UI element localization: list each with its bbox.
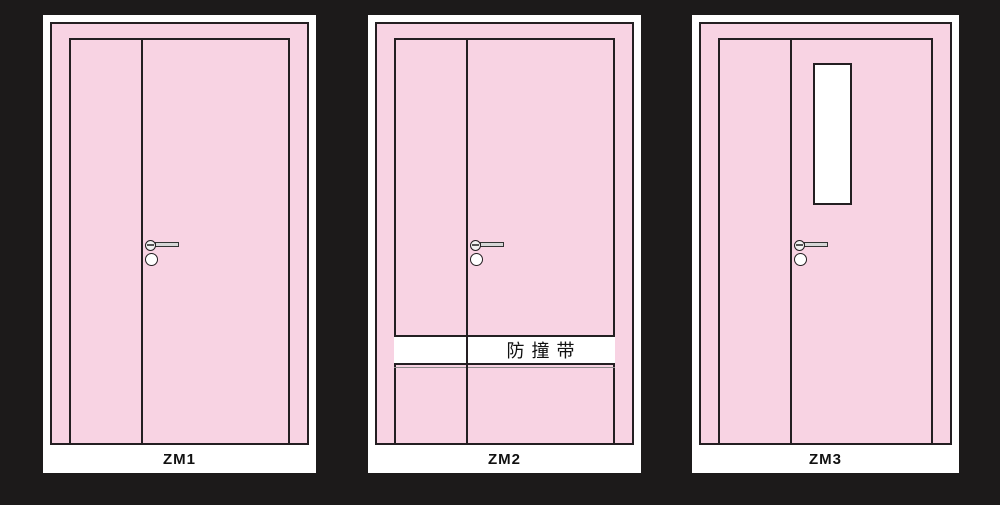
door-label: ZM3 [809, 451, 842, 468]
door-leaf-left [720, 40, 790, 443]
door-card-zm2: 防撞带 ZM2 [368, 15, 641, 473]
leaf-divider-line [790, 40, 792, 443]
handle-lever-bar [155, 242, 179, 247]
handle-lever-rose [145, 240, 156, 251]
handle-lever-bar [804, 242, 828, 247]
anti-collision-band-label: 防撞带 [466, 337, 615, 363]
door-label-strip: ZM3 [692, 445, 959, 473]
handle-lever-rose [470, 240, 481, 251]
drawing-canvas: ZM1 防撞带 ZM2 [0, 0, 1000, 505]
handle-lock-cylinder [794, 253, 807, 266]
door-frame: 防撞带 [375, 22, 634, 445]
vision-panel-window [813, 63, 852, 205]
door-label: ZM1 [163, 451, 196, 468]
leaf-divider-line [141, 40, 143, 443]
anti-collision-band: 防撞带 [394, 335, 615, 365]
door-frame [50, 22, 309, 445]
door-leaves [69, 38, 290, 443]
door-leaves: 防撞带 [394, 38, 615, 443]
door-leaves [718, 38, 933, 443]
door-label: ZM2 [488, 451, 521, 468]
door-card-zm3: ZM3 [692, 15, 959, 473]
anti-collision-band-shadow-line [394, 367, 615, 368]
door-label-strip: ZM1 [43, 445, 316, 473]
door-label-strip: ZM2 [368, 445, 641, 473]
handle-lock-cylinder [145, 253, 158, 266]
leaf-divider-line [466, 40, 468, 443]
door-frame [699, 22, 952, 445]
door-leaf-left [71, 40, 141, 443]
door-card-zm1: ZM1 [43, 15, 316, 473]
handle-lock-cylinder [470, 253, 483, 266]
handle-lever-bar [480, 242, 504, 247]
handle-lever-rose [794, 240, 805, 251]
door-leaf-left [396, 40, 466, 443]
